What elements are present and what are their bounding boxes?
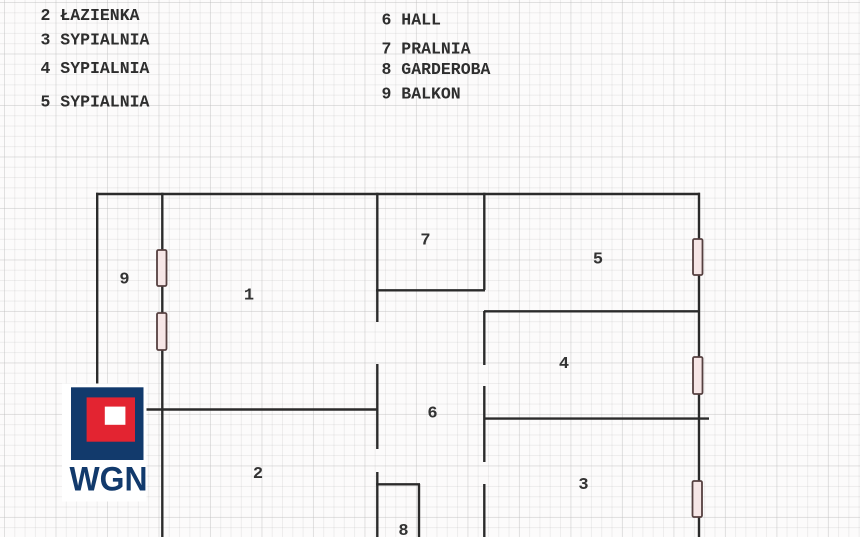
svg-text:1: 1 — [244, 287, 254, 306]
svg-text:4 SYPIALNIA: 4 SYPIALNIA — [41, 59, 150, 78]
svg-text:8: 8 — [398, 522, 408, 537]
svg-text:2 ŁAZIENKA: 2 ŁAZIENKA — [41, 6, 140, 25]
svg-text:4: 4 — [559, 355, 569, 374]
svg-text:2: 2 — [253, 465, 263, 484]
svg-text:9 BALKON: 9 BALKON — [382, 85, 461, 104]
svg-text:8 GARDEROBA: 8 GARDEROBA — [382, 60, 491, 79]
svg-text:9: 9 — [119, 271, 129, 290]
svg-text:3: 3 — [578, 476, 588, 495]
svg-text:3 SYPIALNIA: 3 SYPIALNIA — [41, 30, 150, 49]
svg-text:6 HALL: 6 HALL — [382, 10, 442, 29]
svg-text:7 PRALNIA: 7 PRALNIA — [382, 40, 471, 59]
svg-text:5: 5 — [593, 251, 603, 270]
svg-text:5 SYPIALNIA: 5 SYPIALNIA — [41, 93, 150, 112]
svg-text:WGN: WGN — [70, 460, 148, 498]
svg-text:7: 7 — [420, 232, 430, 251]
svg-text:6: 6 — [427, 404, 437, 423]
